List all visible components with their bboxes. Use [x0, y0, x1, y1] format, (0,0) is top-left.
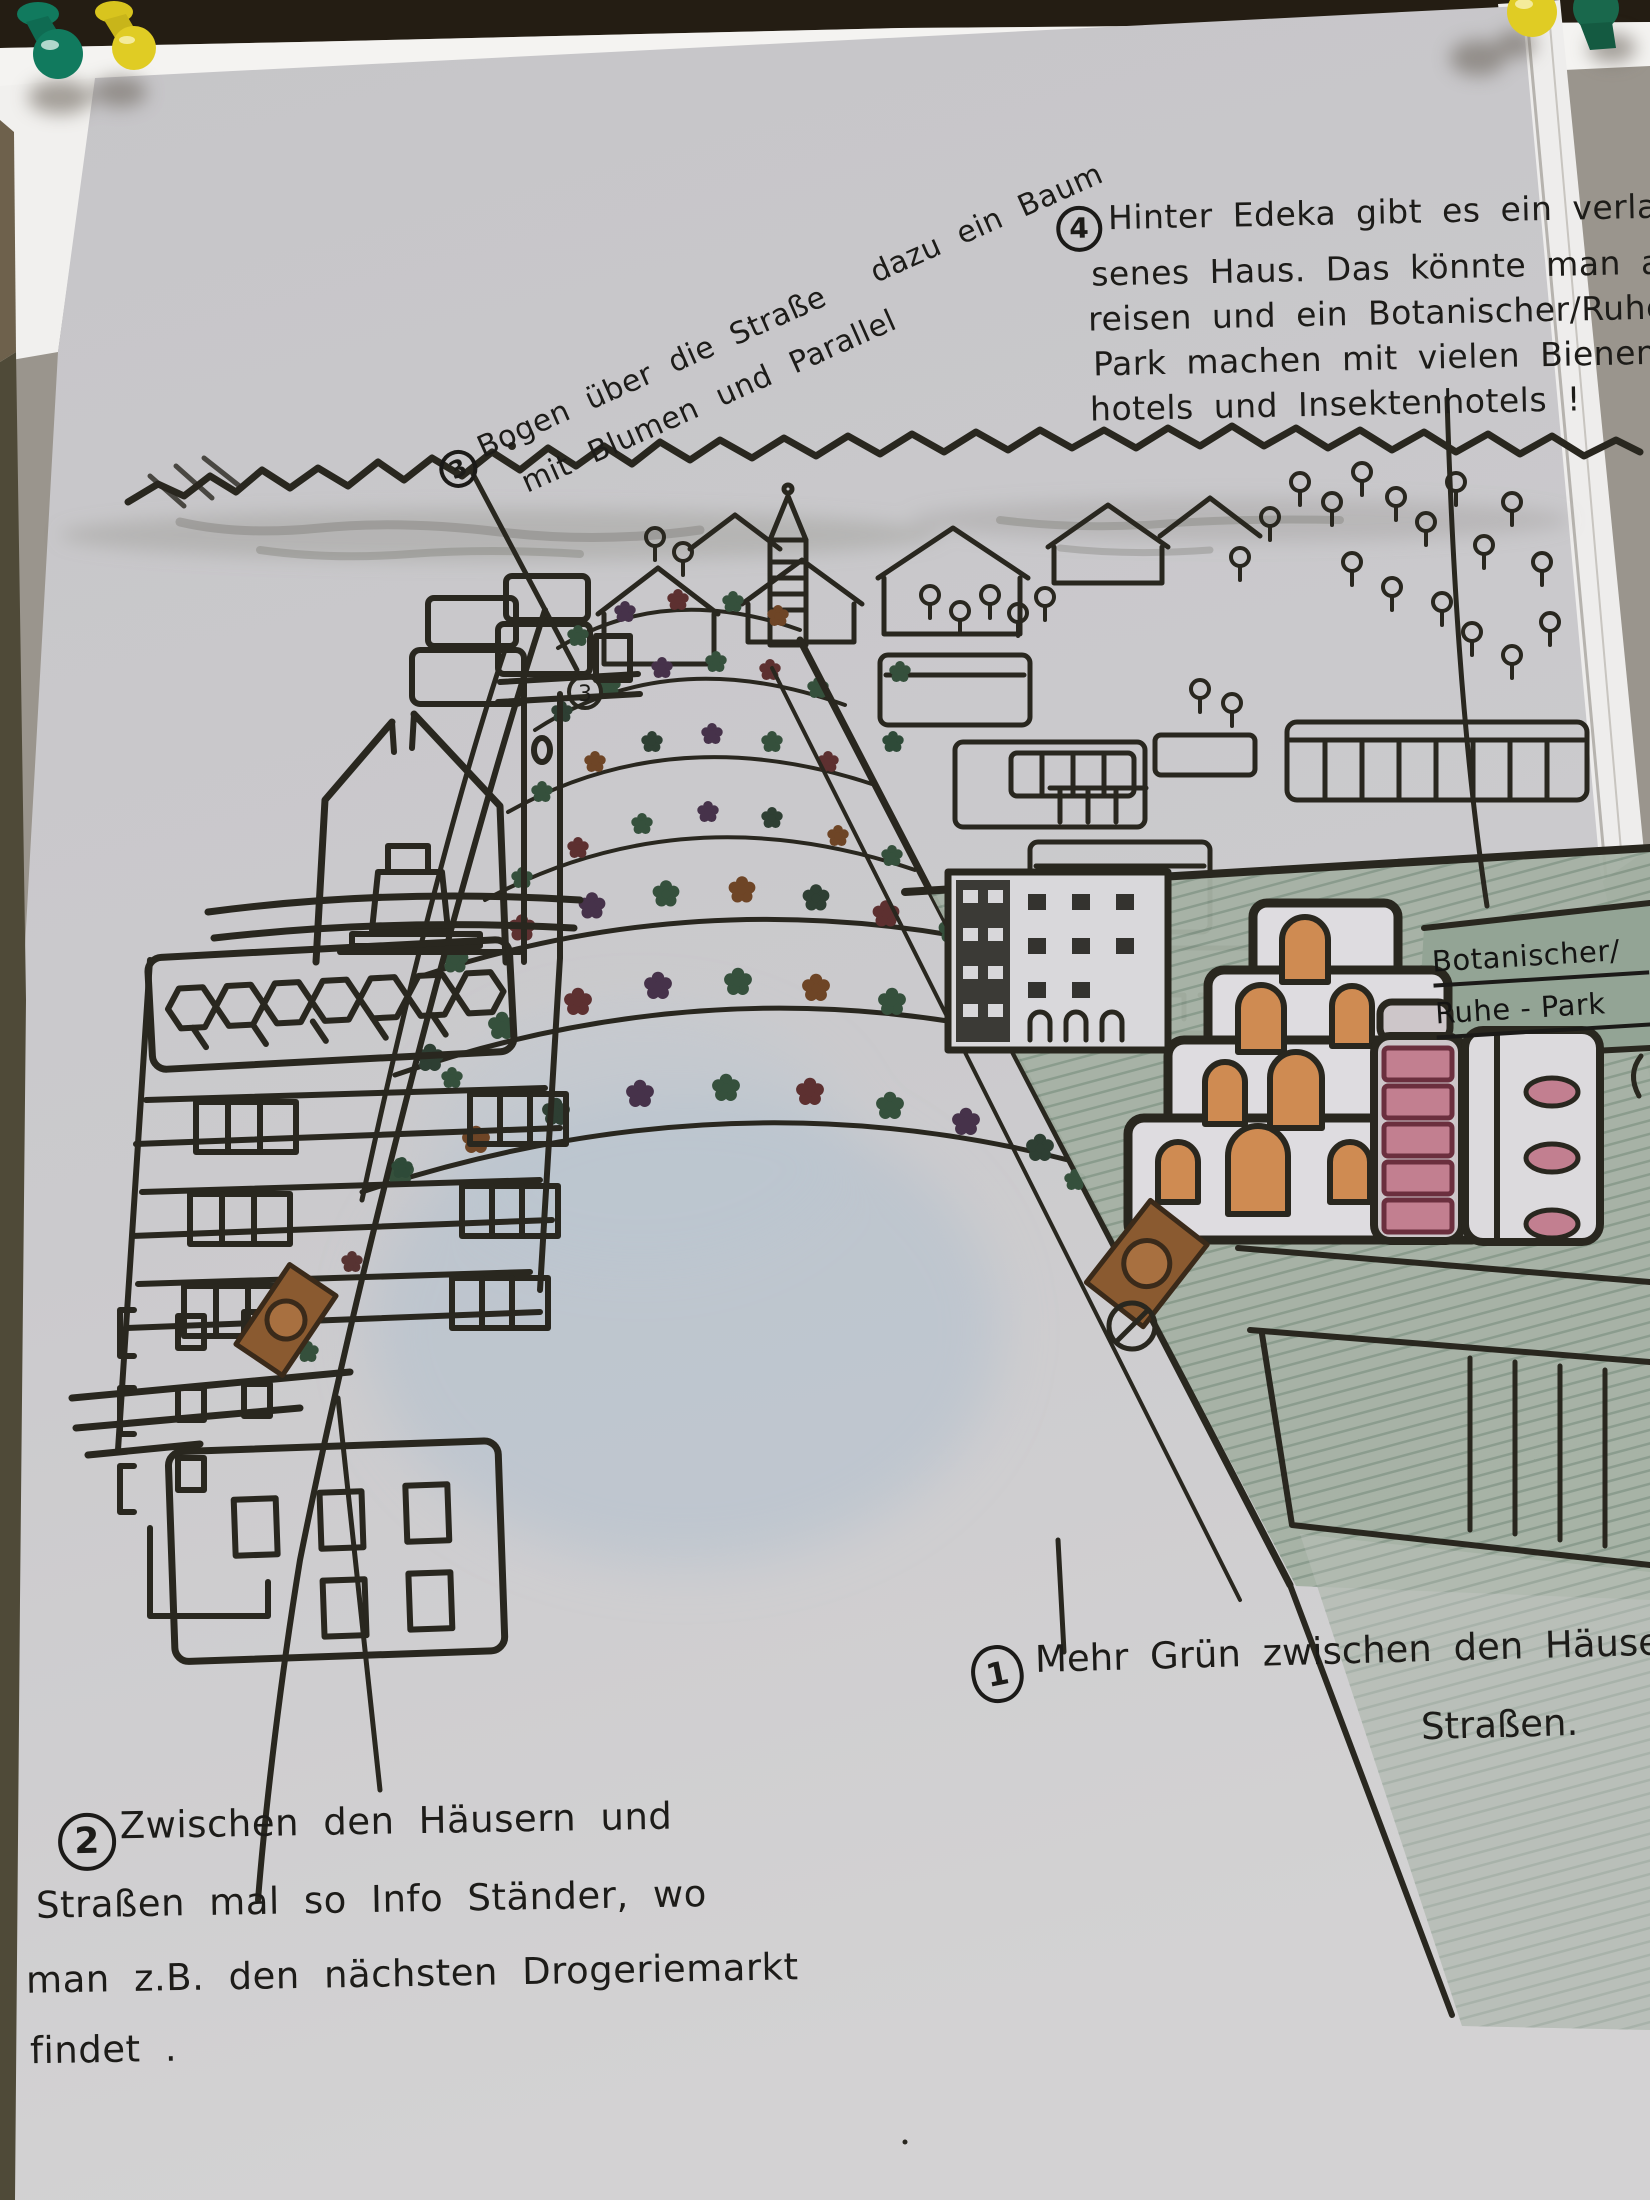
garland-marker-3: 3: [578, 682, 592, 707]
note-4-line-1: Hinter Edeka gibt es ein verla: [1108, 187, 1650, 238]
note-2-number: 2: [58, 1812, 117, 1871]
note-1-number: 1: [966, 1640, 1029, 1707]
note-2-text-1: Zwischen den Häusern und: [119, 1795, 672, 1848]
note-2-line-4: findet .: [30, 2027, 178, 2073]
note-2-line-1: 2Zwischen den Häusern und: [57, 1795, 673, 1872]
note-1-line-2: Straßen.: [1420, 1698, 1650, 1748]
note-1-block: 1Mehr Grün zwischen den Häusern u Straße…: [970, 1620, 1650, 1760]
park-sign-line-2: Ruhe - Park: [1434, 983, 1650, 1039]
photo-of-pinned-drawing: 3: [0, 0, 1650, 2200]
park-sign-label: Botanischer/ Ruhe - Park: [1431, 932, 1650, 1049]
